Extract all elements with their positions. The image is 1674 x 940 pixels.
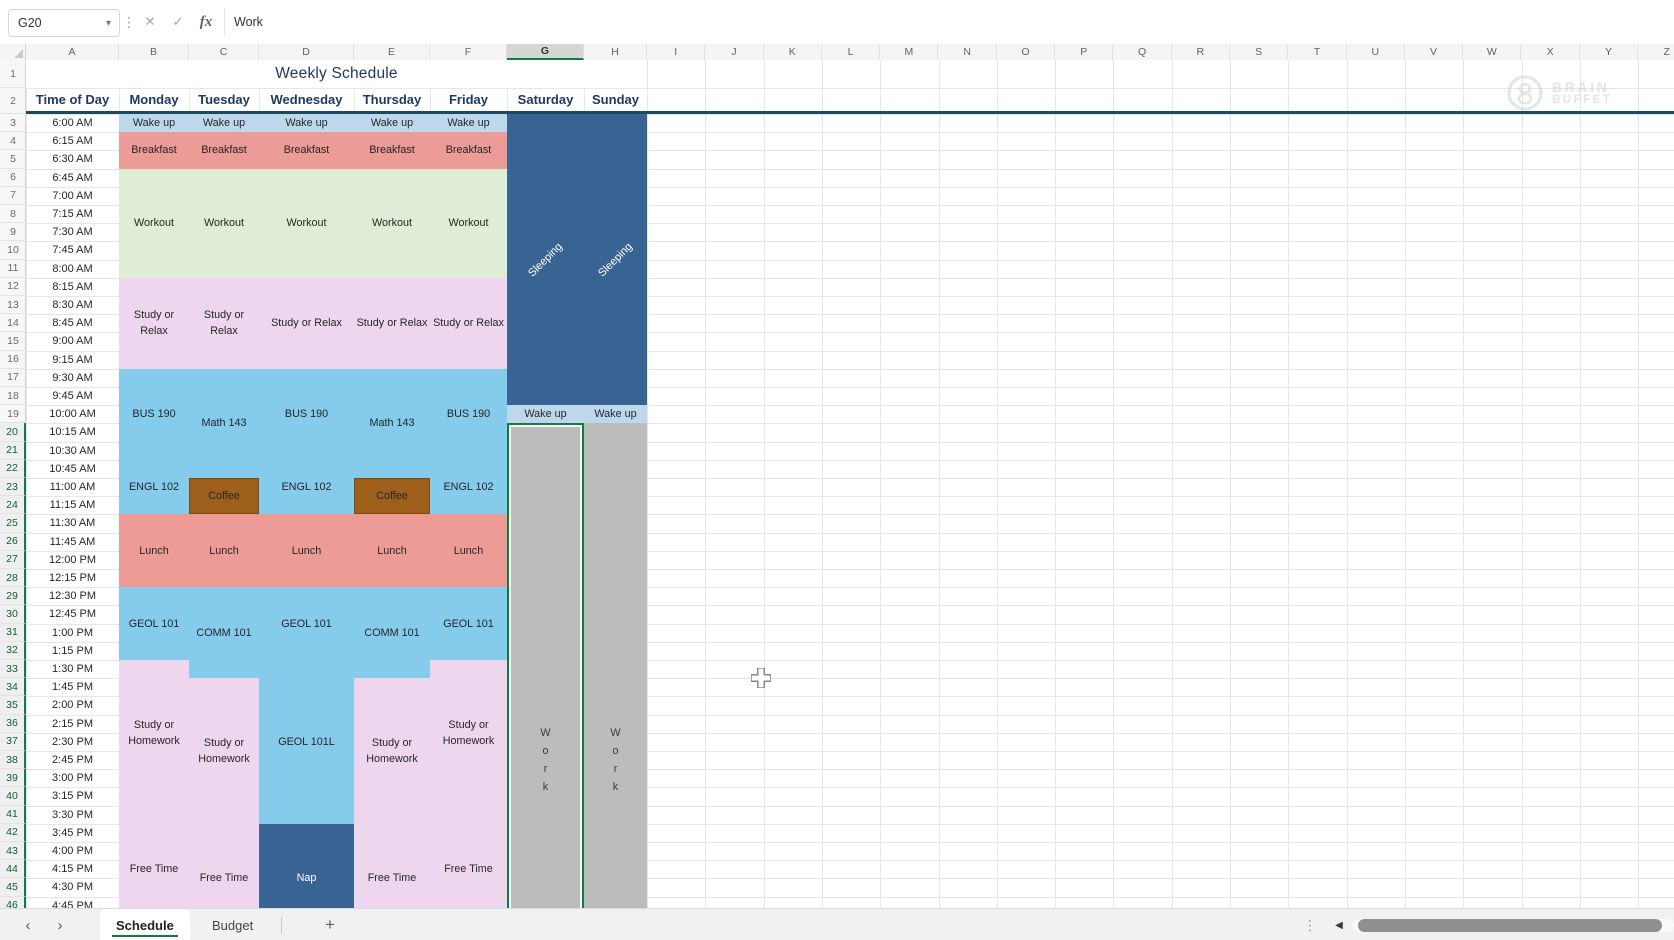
row-header-13[interactable]: 13 bbox=[0, 296, 26, 314]
block-label: ENGL 102 bbox=[129, 479, 179, 495]
tab-divider bbox=[281, 917, 282, 933]
formula-bar-row: G20 ▾ ⋮ ✕ ✓ fx Work bbox=[0, 0, 1674, 45]
day-header-friday[interactable]: Friday bbox=[430, 88, 507, 111]
select-all-corner[interactable] bbox=[0, 44, 26, 60]
row-header-15[interactable]: 15 bbox=[0, 332, 26, 350]
row-header-22[interactable]: 22 bbox=[0, 460, 26, 478]
block-label: Study or Homework bbox=[119, 717, 189, 749]
block-label: Study or Relax bbox=[357, 315, 428, 331]
block-label: Study or Homework bbox=[430, 717, 507, 749]
time-cell-37[interactable]: 2:30 PM bbox=[26, 733, 119, 751]
row-header-43[interactable]: 43 bbox=[0, 842, 26, 860]
block-label: Breakfast bbox=[446, 142, 492, 158]
day-header-monday[interactable]: Monday bbox=[119, 88, 189, 111]
brain-buffet-logo: BRAIN BUFFET bbox=[1506, 74, 1612, 112]
time-cell-3[interactable]: 6:00 AM bbox=[26, 114, 119, 132]
row-header-27[interactable]: 27 bbox=[0, 551, 26, 569]
block-monday-engl-102[interactable]: ENGL 102 bbox=[119, 460, 189, 515]
name-box[interactable]: G20 ▾ bbox=[8, 9, 120, 37]
block-label: Free Time bbox=[368, 870, 417, 886]
column-header-C[interactable]: C bbox=[189, 44, 259, 60]
column-header-M[interactable]: M bbox=[880, 44, 938, 60]
time-cell-40[interactable]: 3:15 PM bbox=[26, 787, 119, 805]
row-header-40[interactable]: 40 bbox=[0, 787, 26, 805]
block-monday-wake-up[interactable]: Wake up bbox=[119, 114, 189, 132]
block-label: GEOL 101 bbox=[443, 616, 494, 632]
block-tuesday-math-143[interactable]: Math 143 bbox=[189, 369, 259, 478]
time-cell-10[interactable]: 7:45 AM bbox=[26, 241, 119, 259]
time-cell-13[interactable]: 8:30 AM bbox=[26, 296, 119, 314]
time-cell-32[interactable]: 1:15 PM bbox=[26, 642, 119, 660]
time-cell-6[interactable]: 6:45 AM bbox=[26, 169, 119, 187]
day-header-sunday[interactable]: Sunday bbox=[584, 88, 647, 111]
block-label: GEOL 101 bbox=[129, 616, 180, 632]
block-label: ENGL 102 bbox=[443, 479, 493, 495]
block-label: Study or Relax bbox=[119, 307, 189, 339]
block-thursday-study-or-relax[interactable]: Study or Relax bbox=[354, 278, 430, 369]
block-label: Coffee bbox=[376, 488, 408, 504]
time-cell-31[interactable]: 1:00 PM bbox=[26, 624, 119, 642]
block-friday-wake-up[interactable]: Wake up bbox=[430, 114, 507, 132]
block-tuesday-lunch[interactable]: Lunch bbox=[189, 514, 259, 587]
column-header-H[interactable]: H bbox=[584, 44, 647, 60]
time-cell-46[interactable]: 4:45 PM bbox=[26, 897, 119, 908]
block-thursday-breakfast[interactable]: Breakfast bbox=[354, 132, 430, 168]
time-cell-30[interactable]: 12:45 PM bbox=[26, 605, 119, 623]
row-header-36[interactable]: 36 bbox=[0, 715, 26, 733]
sheet-canvas: Weekly Schedule Time of DayMondayTuesday… bbox=[0, 60, 1674, 908]
block-label: Lunch bbox=[454, 543, 483, 559]
column-header-G[interactable]: G bbox=[507, 44, 584, 60]
block-thursday-lunch[interactable]: Lunch bbox=[354, 514, 430, 587]
time-cell-26[interactable]: 11:45 AM bbox=[26, 533, 119, 551]
column-header-Y[interactable]: Y bbox=[1580, 44, 1638, 60]
time-cell-36[interactable]: 2:15 PM bbox=[26, 715, 119, 733]
cell-cursor-icon bbox=[748, 665, 774, 696]
block-wednesday-bus-190[interactable]: BUS 190 bbox=[259, 369, 354, 460]
block-tuesday-comm-101[interactable]: COMM 101 bbox=[189, 587, 259, 678]
block-label: Study or Relax bbox=[433, 315, 504, 331]
row-header-37[interactable]: 37 bbox=[0, 733, 26, 751]
column-header-D[interactable]: D bbox=[259, 44, 354, 60]
row-header-35[interactable]: 35 bbox=[0, 696, 26, 714]
block-sunday-work[interactable]: Work bbox=[584, 423, 647, 908]
day-header-saturday[interactable]: Saturday bbox=[507, 88, 584, 111]
block-tuesday-study-or-relax[interactable]: Study or Relax bbox=[189, 278, 259, 369]
block-label: Free Time bbox=[200, 870, 249, 886]
column-header-strip: ABCDEFGHIJKLMNOPQRSTUVWXYZ bbox=[0, 44, 1674, 61]
row-header-29[interactable]: 29 bbox=[0, 587, 26, 605]
row-header-39[interactable]: 39 bbox=[0, 769, 26, 787]
block-saturday-sleeping[interactable]: Sleeping bbox=[507, 114, 584, 405]
row-header-16[interactable]: 16 bbox=[0, 351, 26, 369]
block-friday-geol-101[interactable]: GEOL 101 bbox=[430, 587, 507, 660]
time-cell-17[interactable]: 9:30 AM bbox=[26, 369, 119, 387]
row-header-46[interactable]: 46 bbox=[0, 897, 26, 908]
block-label: Study or Homework bbox=[189, 735, 259, 767]
column-header-A[interactable]: A bbox=[26, 44, 119, 60]
block-label: Workout bbox=[448, 215, 488, 231]
formula-bar-drag-dots-icon: ⋮ bbox=[122, 11, 136, 33]
formula-input[interactable]: Work bbox=[234, 9, 1664, 35]
time-cell-44[interactable]: 4:15 PM bbox=[26, 860, 119, 878]
row-header-23[interactable]: 23 bbox=[0, 478, 26, 496]
block-thursday-math-143[interactable]: Math 143 bbox=[354, 369, 430, 478]
formula-bar-divider bbox=[224, 8, 225, 36]
block-label: BUS 190 bbox=[132, 406, 175, 422]
time-cell-29[interactable]: 12:30 PM bbox=[26, 587, 119, 605]
block-label: GEOL 101L bbox=[278, 734, 335, 750]
row-header-24[interactable]: 24 bbox=[0, 496, 26, 514]
time-cell-20[interactable]: 10:15 AM bbox=[26, 423, 119, 441]
time-cell-5[interactable]: 6:30 AM bbox=[26, 150, 119, 168]
block-label: COMM 101 bbox=[196, 625, 251, 641]
block-label: Work bbox=[540, 724, 550, 797]
block-label: Free Time bbox=[444, 861, 493, 877]
block-monday-study-or-homework[interactable]: Study or Homework bbox=[119, 660, 189, 806]
time-cell-4[interactable]: 6:15 AM bbox=[26, 132, 119, 150]
block-label: Lunch bbox=[139, 543, 168, 559]
block-label: Study or Relax bbox=[189, 307, 259, 339]
time-cell-41[interactable]: 3:30 PM bbox=[26, 806, 119, 824]
time-cell-25[interactable]: 11:30 AM bbox=[26, 514, 119, 532]
column-header-B[interactable]: B bbox=[119, 44, 189, 60]
cancel-icon[interactable]: ✕ bbox=[138, 10, 162, 34]
row-header-6[interactable]: 6 bbox=[0, 169, 26, 187]
block-label: Coffee bbox=[208, 488, 240, 504]
time-cell-28[interactable]: 12:15 PM bbox=[26, 569, 119, 587]
tab-budget[interactable]: Budget bbox=[196, 909, 269, 940]
block-friday-engl-102[interactable]: ENGL 102 bbox=[430, 460, 507, 515]
row-header-26[interactable]: 26 bbox=[0, 533, 26, 551]
row-header-2[interactable]: 2 bbox=[0, 88, 26, 114]
column-header-E[interactable]: E bbox=[354, 44, 430, 60]
time-cell-24[interactable]: 11:15 AM bbox=[26, 496, 119, 514]
time-cell-8[interactable]: 7:15 AM bbox=[26, 205, 119, 223]
scroll-left-arrow-icon[interactable]: ◀ bbox=[1330, 909, 1348, 940]
block-tuesday-free-time[interactable]: Free Time bbox=[189, 824, 259, 908]
sheet-tab-bar: ‹ › Schedule Budget + ⋮ ◀ bbox=[0, 908, 1674, 940]
block-label: ENGL 102 bbox=[281, 479, 331, 495]
fx-icon[interactable]: fx bbox=[194, 10, 218, 34]
row-header-7[interactable]: 7 bbox=[0, 187, 26, 205]
block-label: Study or Homework bbox=[354, 735, 430, 767]
time-cell-39[interactable]: 3:00 PM bbox=[26, 769, 119, 787]
spreadsheet-app: G20 ▾ ⋮ ✕ ✓ fx Work ABCDEFGHIJKLMNOPQRST… bbox=[0, 0, 1674, 940]
block-thursday-coffee[interactable]: Coffee bbox=[354, 478, 430, 514]
time-cell-27[interactable]: 12:00 PM bbox=[26, 551, 119, 569]
block-monday-workout[interactable]: Workout bbox=[119, 169, 189, 278]
row-header-18[interactable]: 18 bbox=[0, 387, 26, 405]
column-header-O[interactable]: O bbox=[997, 44, 1055, 60]
row-header-45[interactable]: 45 bbox=[0, 878, 26, 896]
day-header-tuesday[interactable]: Tuesday bbox=[189, 88, 259, 111]
block-monday-breakfast[interactable]: Breakfast bbox=[119, 132, 189, 168]
name-box-cell-ref: G20 bbox=[9, 16, 106, 30]
time-cell-42[interactable]: 3:45 PM bbox=[26, 824, 119, 842]
block-label: Lunch bbox=[209, 543, 238, 559]
row-header-17[interactable]: 17 bbox=[0, 369, 26, 387]
column-header-V[interactable]: V bbox=[1405, 44, 1463, 60]
horizontal-scrollbar-thumb[interactable] bbox=[1358, 919, 1662, 932]
block-label: Breakfast bbox=[369, 142, 415, 158]
block-wednesday-geol-101[interactable]: GEOL 101 bbox=[259, 587, 354, 660]
block-thursday-wake-up[interactable]: Wake up bbox=[354, 114, 430, 132]
block-thursday-free-time[interactable]: Free Time bbox=[354, 824, 430, 908]
time-cell-16[interactable]: 9:15 AM bbox=[26, 351, 119, 369]
time-cell-19[interactable]: 10:00 AM bbox=[26, 405, 119, 423]
block-label: Workout bbox=[372, 215, 412, 231]
block-label: BUS 190 bbox=[285, 406, 328, 422]
column-header-I[interactable]: I bbox=[647, 44, 705, 60]
block-sunday-wake-up[interactable]: Wake up bbox=[584, 405, 647, 423]
tab-schedule[interactable]: Schedule bbox=[100, 909, 190, 940]
block-label: Work bbox=[610, 724, 620, 797]
block-label: Wake up bbox=[133, 115, 175, 131]
row-header-28[interactable]: 28 bbox=[0, 569, 26, 587]
row-header-41[interactable]: 41 bbox=[0, 806, 26, 824]
block-wednesday-engl-102[interactable]: ENGL 102 bbox=[259, 460, 354, 515]
row-header-11[interactable]: 11 bbox=[0, 260, 26, 278]
block-friday-breakfast[interactable]: Breakfast bbox=[430, 132, 507, 168]
block-label: Breakfast bbox=[131, 142, 177, 158]
block-thursday-comm-101[interactable]: COMM 101 bbox=[354, 587, 430, 678]
block-label: Wake up bbox=[203, 115, 245, 131]
time-cell-43[interactable]: 4:00 PM bbox=[26, 842, 119, 860]
block-saturday-wake-up[interactable]: Wake up bbox=[507, 405, 584, 423]
column-header-R[interactable]: R bbox=[1172, 44, 1230, 60]
column-header-L[interactable]: L bbox=[822, 44, 880, 60]
block-wednesday-breakfast[interactable]: Breakfast bbox=[259, 132, 354, 168]
brain-buffet-logo-text: BRAIN BUFFET bbox=[1552, 81, 1612, 106]
column-header-J[interactable]: J bbox=[705, 44, 763, 60]
time-cell-7[interactable]: 7:00 AM bbox=[26, 187, 119, 205]
row-header-8[interactable]: 8 bbox=[0, 205, 26, 223]
block-label: Wake up bbox=[524, 406, 566, 422]
column-header-K[interactable]: K bbox=[764, 44, 822, 60]
block-tuesday-study-or-homework[interactable]: Study or Homework bbox=[189, 678, 259, 824]
time-cell-33[interactable]: 1:30 PM bbox=[26, 660, 119, 678]
time-cell-14[interactable]: 8:45 AM bbox=[26, 314, 119, 332]
block-monday-lunch[interactable]: Lunch bbox=[119, 514, 189, 587]
block-label: Lunch bbox=[377, 543, 406, 559]
column-header-T[interactable]: T bbox=[1288, 44, 1346, 60]
block-wednesday-lunch[interactable]: Lunch bbox=[259, 514, 354, 587]
block-monday-bus-190[interactable]: BUS 190 bbox=[119, 369, 189, 460]
row-header-38[interactable]: 38 bbox=[0, 751, 26, 769]
block-label: Study or Relax bbox=[271, 315, 342, 331]
block-tuesday-wake-up[interactable]: Wake up bbox=[189, 114, 259, 132]
block-monday-free-time[interactable]: Free Time bbox=[119, 806, 189, 908]
row-header-1[interactable]: 1 bbox=[0, 60, 26, 88]
block-label: GEOL 101 bbox=[281, 616, 332, 632]
block-thursday-study-or-homework[interactable]: Study or Homework bbox=[354, 678, 430, 824]
time-cell-11[interactable]: 8:00 AM bbox=[26, 260, 119, 278]
sheet-options-dots-icon[interactable]: ⋮ bbox=[1300, 909, 1320, 940]
brain-buffet-logo-icon bbox=[1506, 74, 1544, 112]
column-header-N[interactable]: N bbox=[939, 44, 997, 60]
row-header-strip: 1234567891011121314151617181920212223242… bbox=[0, 60, 26, 908]
time-cell-23[interactable]: 11:00 AM bbox=[26, 478, 119, 496]
time-cell-45[interactable]: 4:30 PM bbox=[26, 878, 119, 896]
block-label: Free Time bbox=[130, 861, 179, 877]
row-header-3[interactable]: 3 bbox=[0, 114, 26, 132]
block-wednesday-nap[interactable]: Nap bbox=[259, 824, 354, 908]
add-sheet-button[interactable]: + bbox=[316, 909, 344, 940]
block-label: BUS 190 bbox=[447, 406, 490, 422]
block-label: Lunch bbox=[292, 543, 321, 559]
block-label: Breakfast bbox=[201, 142, 247, 158]
column-header-Z[interactable]: Z bbox=[1638, 44, 1674, 60]
column-header-P[interactable]: P bbox=[1055, 44, 1113, 60]
day-header-thursday[interactable]: Thursday bbox=[354, 88, 430, 111]
block-monday-geol-101[interactable]: GEOL 101 bbox=[119, 587, 189, 660]
block-label: Wake up bbox=[285, 115, 327, 131]
enter-icon[interactable]: ✓ bbox=[166, 10, 190, 34]
column-header-U[interactable]: U bbox=[1347, 44, 1405, 60]
block-tuesday-workout[interactable]: Workout bbox=[189, 169, 259, 278]
block-friday-bus-190[interactable]: BUS 190 bbox=[430, 369, 507, 460]
block-label: Workout bbox=[134, 215, 174, 231]
block-label: Workout bbox=[204, 215, 244, 231]
block-friday-lunch[interactable]: Lunch bbox=[430, 514, 507, 587]
block-label: COMM 101 bbox=[364, 625, 419, 641]
time-cell-18[interactable]: 9:45 AM bbox=[26, 387, 119, 405]
row-header-34[interactable]: 34 bbox=[0, 678, 26, 696]
block-wednesday-geol-101l[interactable]: GEOL 101L bbox=[259, 660, 354, 824]
row-header-10[interactable]: 10 bbox=[0, 241, 26, 259]
row-header-12[interactable]: 12 bbox=[0, 278, 26, 296]
horizontal-scrollbar[interactable] bbox=[1352, 919, 1674, 932]
time-cell-12[interactable]: 8:15 AM bbox=[26, 278, 119, 296]
column-header-W[interactable]: W bbox=[1463, 44, 1521, 60]
block-tuesday-coffee[interactable]: Coffee bbox=[189, 478, 259, 514]
block-label: Wake up bbox=[447, 115, 489, 131]
block-label: Sleeping bbox=[595, 239, 637, 281]
row-header-44[interactable]: 44 bbox=[0, 860, 26, 878]
sheet-title-cell[interactable]: Weekly Schedule bbox=[26, 60, 647, 88]
time-cell-35[interactable]: 2:00 PM bbox=[26, 696, 119, 714]
column-header-F[interactable]: F bbox=[430, 44, 507, 60]
block-label: Wake up bbox=[594, 406, 636, 422]
chevron-down-icon[interactable]: ▾ bbox=[106, 18, 119, 29]
block-wednesday-workout[interactable]: Workout bbox=[259, 169, 354, 278]
block-thursday-workout[interactable]: Workout bbox=[354, 169, 430, 278]
time-cell-34[interactable]: 1:45 PM bbox=[26, 678, 119, 696]
row-header-14[interactable]: 14 bbox=[0, 314, 26, 332]
block-wednesday-study-or-relax[interactable]: Study or Relax bbox=[259, 278, 354, 369]
block-saturday-work[interactable]: Work bbox=[507, 423, 584, 908]
row-header-33[interactable]: 33 bbox=[0, 660, 26, 678]
block-friday-free-time[interactable]: Free Time bbox=[430, 806, 507, 908]
block-label: Workout bbox=[286, 215, 326, 231]
day-header-wednesday[interactable]: Wednesday bbox=[259, 88, 354, 111]
column-header-X[interactable]: X bbox=[1522, 44, 1580, 60]
row-header-31[interactable]: 31 bbox=[0, 624, 26, 642]
row-header-42[interactable]: 42 bbox=[0, 824, 26, 842]
block-label: Math 143 bbox=[201, 415, 246, 431]
row-header-25[interactable]: 25 bbox=[0, 514, 26, 532]
block-tuesday-breakfast[interactable]: Breakfast bbox=[189, 132, 259, 168]
column-header-S[interactable]: S bbox=[1230, 44, 1288, 60]
time-cell-38[interactable]: 2:45 PM bbox=[26, 751, 119, 769]
row-header-32[interactable]: 32 bbox=[0, 642, 26, 660]
block-friday-study-or-homework[interactable]: Study or Homework bbox=[430, 660, 507, 806]
day-header-time-of-day[interactable]: Time of Day bbox=[26, 88, 119, 111]
block-wednesday-wake-up[interactable]: Wake up bbox=[259, 114, 354, 132]
time-cell-15[interactable]: 9:00 AM bbox=[26, 332, 119, 350]
row-header-20[interactable]: 20 bbox=[0, 423, 26, 441]
time-cell-22[interactable]: 10:45 AM bbox=[26, 460, 119, 478]
block-label: Breakfast bbox=[284, 142, 330, 158]
row-header-19[interactable]: 19 bbox=[0, 405, 26, 423]
block-label: Sleeping bbox=[525, 239, 567, 281]
row-header-9[interactable]: 9 bbox=[0, 223, 26, 241]
block-label: Wake up bbox=[371, 115, 413, 131]
block-label: Nap bbox=[297, 870, 317, 886]
row-header-5[interactable]: 5 bbox=[0, 150, 26, 168]
row-header-4[interactable]: 4 bbox=[0, 132, 26, 150]
block-friday-study-or-relax[interactable]: Study or Relax bbox=[430, 278, 507, 369]
time-cell-9[interactable]: 7:30 AM bbox=[26, 223, 119, 241]
block-sunday-sleeping[interactable]: Sleeping bbox=[584, 114, 647, 405]
row-header-30[interactable]: 30 bbox=[0, 605, 26, 623]
block-friday-workout[interactable]: Workout bbox=[430, 169, 507, 278]
block-label: Math 143 bbox=[369, 415, 414, 431]
column-header-Q[interactable]: Q bbox=[1113, 44, 1171, 60]
time-cell-21[interactable]: 10:30 AM bbox=[26, 442, 119, 460]
next-sheet-arrow[interactable]: › bbox=[48, 909, 72, 940]
row-header-21[interactable]: 21 bbox=[0, 442, 26, 460]
block-monday-study-or-relax[interactable]: Study or Relax bbox=[119, 278, 189, 369]
active-tab-underline bbox=[112, 935, 178, 938]
prev-sheet-arrow[interactable]: ‹ bbox=[16, 909, 40, 940]
